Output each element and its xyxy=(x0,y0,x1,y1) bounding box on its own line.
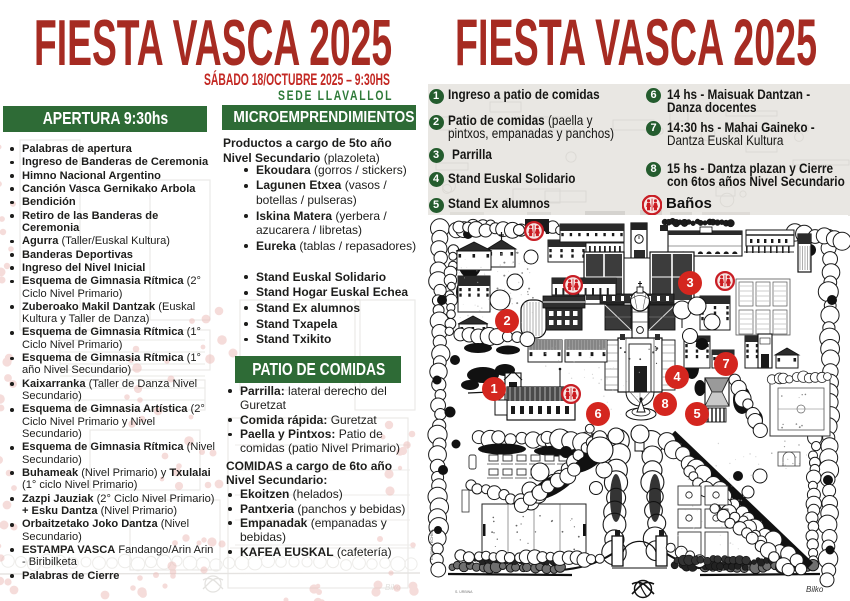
svg-text:Bilko: Bilko xyxy=(806,585,824,594)
svg-text:S. URBINA: S. URBINA xyxy=(455,590,473,594)
svg-text:EUSKAL ECHEA: EUSKAL ECHEA xyxy=(429,529,434,560)
